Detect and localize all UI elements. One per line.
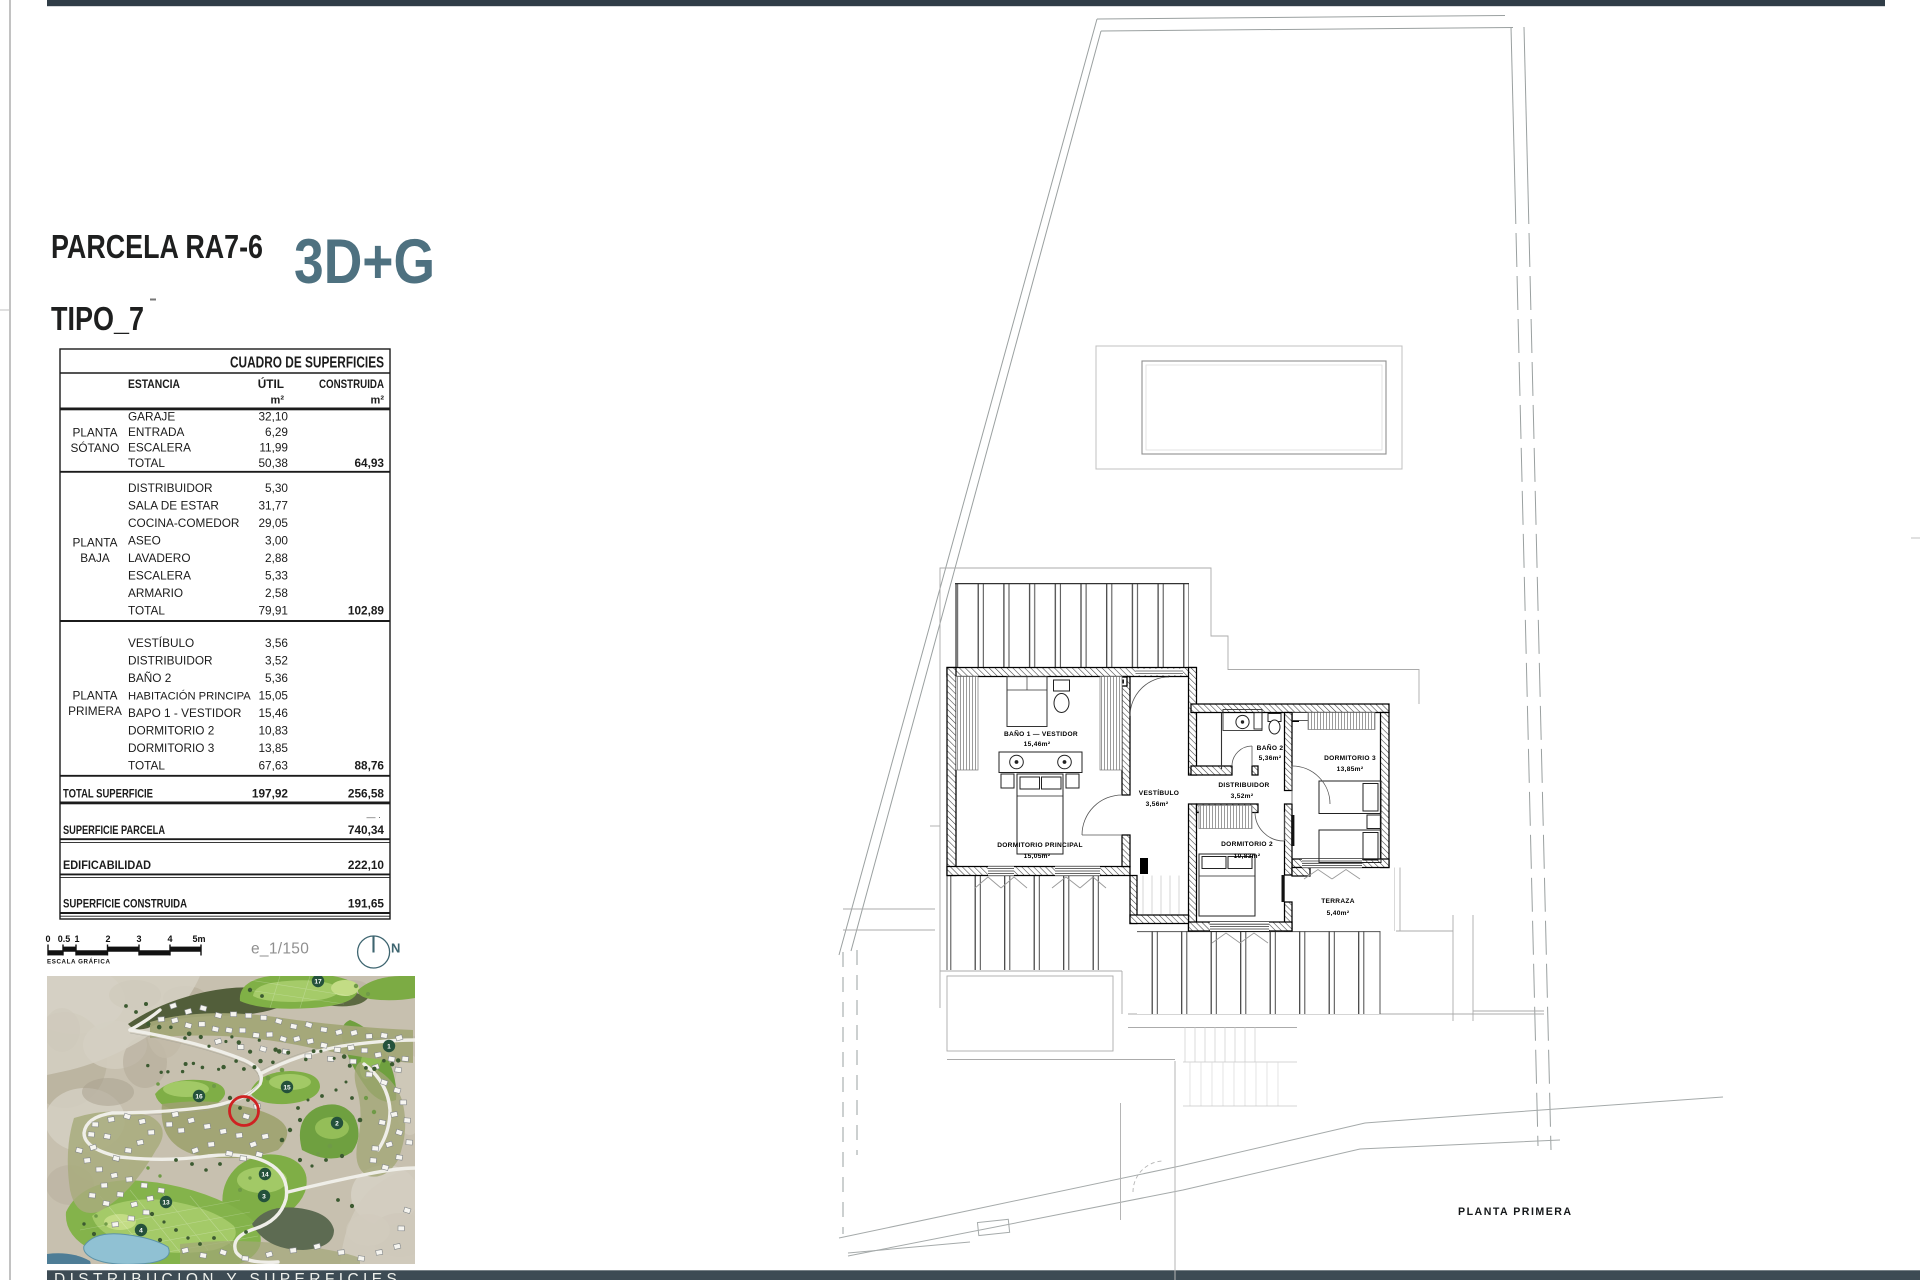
svg-text:PLANTA: PLANTA bbox=[72, 426, 117, 440]
svg-text:DORMITORIO PRINCIPAL: DORMITORIO PRINCIPAL bbox=[997, 842, 1083, 849]
svg-text:3,56: 3,56 bbox=[265, 636, 288, 650]
svg-text:SUPERFICIE CONSTRUIDA: SUPERFICIE CONSTRUIDA bbox=[63, 897, 187, 911]
svg-text:2: 2 bbox=[335, 1120, 339, 1127]
svg-text:DORMITORIO 3: DORMITORIO 3 bbox=[1324, 755, 1376, 762]
svg-text:3: 3 bbox=[262, 1193, 266, 1200]
svg-text:BAÑO 2: BAÑO 2 bbox=[128, 671, 171, 685]
svg-text:15,46: 15,46 bbox=[258, 706, 288, 720]
svg-text:e_1/150: e_1/150 bbox=[251, 941, 309, 958]
svg-text:88,76: 88,76 bbox=[354, 759, 384, 773]
svg-text:BAPO 1 - VESTIDOR: BAPO 1 - VESTIDOR bbox=[128, 706, 241, 720]
svg-text:50,38: 50,38 bbox=[258, 456, 288, 470]
svg-text:TOTAL SUPERFICIE: TOTAL SUPERFICIE bbox=[63, 787, 153, 801]
svg-text:COCINA-COMEDOR: COCINA-COMEDOR bbox=[128, 516, 239, 530]
svg-text:TOTAL: TOTAL bbox=[128, 604, 165, 618]
svg-text:6,29: 6,29 bbox=[265, 425, 288, 439]
svg-text:191,65: 191,65 bbox=[348, 897, 385, 911]
svg-text:PLANTA: PLANTA bbox=[72, 536, 117, 550]
svg-text:67,63: 67,63 bbox=[258, 759, 288, 773]
svg-text:5,33: 5,33 bbox=[265, 569, 288, 583]
svg-text:ASEO: ASEO bbox=[128, 534, 161, 548]
svg-text:15: 15 bbox=[283, 1084, 291, 1091]
svg-text:EDIFICABILIDAD: EDIFICABILIDAD bbox=[63, 858, 151, 872]
svg-text:LAVADERO: LAVADERO bbox=[128, 551, 191, 565]
svg-text:5,36: 5,36 bbox=[265, 671, 288, 685]
svg-text:DISTRIBUIDOR: DISTRIBUIDOR bbox=[1218, 782, 1269, 789]
svg-text:DISTRIBUIDOR: DISTRIBUIDOR bbox=[128, 654, 213, 668]
svg-text:197,92: 197,92 bbox=[252, 787, 289, 801]
svg-text:TOTAL: TOTAL bbox=[128, 456, 165, 470]
svg-text:ARMARIO: ARMARIO bbox=[128, 586, 183, 600]
svg-text:PLANTA PRIMERA: PLANTA PRIMERA bbox=[1458, 1206, 1573, 1218]
svg-text:4: 4 bbox=[167, 934, 172, 944]
svg-text:DORMITORIO 2: DORMITORIO 2 bbox=[128, 724, 214, 738]
svg-text:222,10: 222,10 bbox=[348, 858, 385, 872]
svg-text:2,58: 2,58 bbox=[265, 586, 288, 600]
svg-text:256,58: 256,58 bbox=[348, 787, 385, 801]
svg-text:CUADRO DE SUPERFICIES: CUADRO DE SUPERFICIES bbox=[230, 355, 384, 372]
svg-text:64,93: 64,93 bbox=[354, 456, 384, 470]
svg-text:PRIMERA: PRIMERA bbox=[68, 704, 122, 718]
svg-text:PARCELA RA7-6: PARCELA RA7-6 bbox=[51, 229, 263, 266]
svg-text:ESCALA GRÁFICA: ESCALA GRÁFICA bbox=[47, 959, 111, 966]
svg-text:BAJA: BAJA bbox=[80, 551, 110, 565]
svg-text:DORMITORIO 2: DORMITORIO 2 bbox=[1221, 841, 1273, 848]
svg-text:SUPERFICIE PARCELA: SUPERFICIE PARCELA bbox=[63, 823, 165, 837]
svg-text:DORMITORIO 3: DORMITORIO 3 bbox=[128, 741, 215, 755]
svg-text:PLANTA: PLANTA bbox=[72, 689, 117, 703]
svg-text:2,88: 2,88 bbox=[265, 551, 288, 565]
svg-text:15,05m²: 15,05m² bbox=[1024, 853, 1051, 860]
svg-text:— ·: — · bbox=[367, 812, 382, 822]
svg-text:ESTANCIA: ESTANCIA bbox=[128, 377, 180, 391]
svg-text:13,85: 13,85 bbox=[258, 741, 288, 755]
svg-text:10,83m²: 10,83m² bbox=[1234, 853, 1261, 860]
svg-text:13: 13 bbox=[162, 1199, 170, 1206]
svg-text:VESTÍBULO: VESTÍBULO bbox=[1139, 788, 1179, 797]
svg-text:TOTAL: TOTAL bbox=[128, 759, 165, 773]
svg-text:5,40m²: 5,40m² bbox=[1327, 910, 1350, 917]
svg-text:1: 1 bbox=[74, 934, 79, 944]
svg-text:4: 4 bbox=[139, 1227, 143, 1234]
svg-text:m²: m² bbox=[371, 395, 385, 407]
svg-text:11,99: 11,99 bbox=[259, 441, 288, 455]
svg-text:BAÑO 1 — VESTIDOR: BAÑO 1 — VESTIDOR bbox=[1004, 729, 1078, 738]
svg-text:DISTRIBUCION Y SUPERFICIES: DISTRIBUCION Y SUPERFICIES bbox=[54, 1271, 401, 1280]
svg-text:CONSTRUIDA: CONSTRUIDA bbox=[319, 377, 384, 391]
svg-text:3,00: 3,00 bbox=[265, 534, 288, 548]
svg-text:ÚTIL: ÚTIL bbox=[258, 377, 284, 391]
svg-text:102,89: 102,89 bbox=[348, 604, 385, 618]
svg-text:BAÑO 2: BAÑO 2 bbox=[1257, 743, 1284, 752]
svg-text:N: N bbox=[391, 941, 400, 956]
svg-text:VESTÍBULO: VESTÍBULO bbox=[128, 636, 194, 650]
svg-text:2: 2 bbox=[105, 934, 110, 944]
svg-text:ESCALERA: ESCALERA bbox=[128, 569, 191, 583]
svg-text:ENTRADA: ENTRADA bbox=[128, 425, 185, 439]
svg-text:3,52: 3,52 bbox=[265, 654, 288, 668]
svg-text:13,85m²: 13,85m² bbox=[1337, 766, 1364, 773]
svg-text:HABITACIÓN PRINCIPA: HABITACIÓN PRINCIPA bbox=[128, 690, 251, 703]
svg-text:DISTRIBUIDOR: DISTRIBUIDOR bbox=[128, 481, 213, 495]
svg-text:32,10: 32,10 bbox=[258, 410, 288, 424]
svg-text:5,30: 5,30 bbox=[265, 481, 288, 495]
svg-text:14: 14 bbox=[261, 1171, 269, 1178]
svg-text:31,77: 31,77 bbox=[258, 499, 288, 513]
svg-text:29,05: 29,05 bbox=[258, 516, 288, 530]
svg-text:79,91: 79,91 bbox=[258, 604, 288, 618]
svg-text:5m: 5m bbox=[192, 934, 205, 944]
svg-text:15,46m²: 15,46m² bbox=[1024, 741, 1051, 748]
svg-text:SÓTANO: SÓTANO bbox=[71, 441, 120, 455]
svg-text:ESCALERA: ESCALERA bbox=[128, 441, 191, 455]
svg-text:17: 17 bbox=[314, 978, 322, 985]
svg-text:0: 0 bbox=[45, 934, 50, 944]
svg-text:5,36m²: 5,36m² bbox=[1259, 755, 1282, 762]
svg-text:m²: m² bbox=[271, 395, 285, 407]
svg-text:TERRAZA: TERRAZA bbox=[1321, 898, 1355, 905]
svg-text:TIPO_7: TIPO_7 bbox=[51, 301, 144, 338]
svg-text:740,34: 740,34 bbox=[348, 823, 385, 837]
svg-text:10,83: 10,83 bbox=[258, 724, 288, 738]
svg-text:3: 3 bbox=[136, 934, 141, 944]
svg-text:16: 16 bbox=[195, 1093, 203, 1100]
svg-text:3,56m²: 3,56m² bbox=[1146, 801, 1169, 808]
svg-text:15,05: 15,05 bbox=[258, 689, 288, 703]
svg-text:1: 1 bbox=[387, 1043, 391, 1050]
svg-text:0.5: 0.5 bbox=[58, 934, 71, 944]
svg-text:3,52m²: 3,52m² bbox=[1231, 793, 1254, 800]
svg-text:GARAJE: GARAJE bbox=[128, 410, 175, 424]
svg-text:3D+G: 3D+G bbox=[294, 227, 435, 297]
svg-text:SALA DE ESTAR: SALA DE ESTAR bbox=[128, 499, 219, 513]
